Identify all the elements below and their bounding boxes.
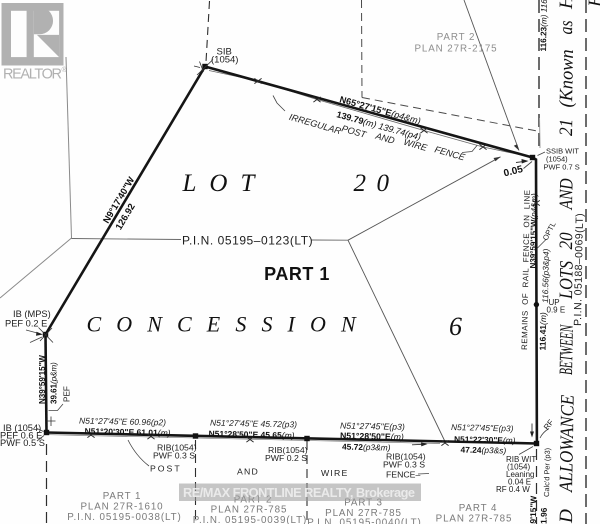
svg-text:PLAN 27R-1610: PLAN 27R-1610 [80,502,163,513]
svg-text:FENCE–: FENCE– [386,470,420,480]
svg-text:P.I.N. 05195-0038(LT): P.I.N. 05195-0038(LT) [67,512,181,523]
svg-text:1.96: 1.96 [539,507,549,524]
svg-text:P.I.N. 05195-0039(LT): P.I.N. 05195-0039(LT) [193,515,307,524]
svg-text:D: D [556,509,577,524]
svg-text:PLAN 27R-785: PLAN 27R-785 [211,505,288,516]
svg-text:PEF 0.2 E: PEF 0.2 E [5,319,47,329]
svg-text:PWF 0.3 S: PWF 0.3 S [153,451,195,461]
svg-text:Calc'd Per (p3): Calc'd Per (p3) [542,448,552,497]
svg-text:PLAN 27R-785: PLAN 27R-785 [436,514,513,524]
svg-text:45.72(p3&m): 45.72(p3&m) [342,442,391,453]
svg-text:PART 4: PART 4 [459,503,498,514]
svg-text:P.I.N. 05195-0040(LT): P.I.N. 05195-0040(LT) [307,518,421,524]
svg-text:116.56(p3&p4): 116.56(p3&p4) [540,248,551,303]
svg-text:21: 21 [556,119,577,136]
svg-text:N51°27'45"E(p3): N51°27'45"E(p3) [451,422,514,433]
svg-text:N39°59'15"W: N39°59'15"W [528,496,539,524]
svg-text:H: H [556,0,577,10]
svg-text:ALLOWANCE: ALLOWANCE [556,394,579,493]
svg-text:N51°27'45"E 45.72(p3): N51°27'45"E 45.72(p3) [210,418,297,430]
svg-text:PLAN 27R-2175: PLAN 27R-2175 [414,44,497,55]
svg-text:BETWEEN: BETWEEN [556,324,578,375]
svg-text:AND: AND [237,467,259,477]
svg-text:PWF 0.2 S: PWF 0.2 S [265,453,307,463]
svg-text:PART 2: PART 2 [437,32,476,43]
svg-text:AND: AND [556,178,578,211]
svg-text:LOT: LOT [182,170,268,197]
svg-text:P.I.N. 05195–0123(LT): P.I.N. 05195–0123(LT) [182,234,313,248]
svg-text:IB (MPS): IB (MPS) [13,309,51,319]
svg-text:47.24(p3&s): 47.24(p3&s) [460,445,506,456]
svg-text:(1054): (1054) [211,55,238,66]
svg-text:39.61(p&m): 39.61(p&m) [50,362,59,404]
svg-text:WIRE: WIRE [321,468,348,478]
svg-text:N51°28'50"E(m): N51°28'50"E(m) [340,431,404,442]
svg-text:PART 1: PART 1 [264,264,330,284]
svg-text:RE/MAX FRONTLINE REALTY, Broke: RE/MAX FRONTLINE REALTY, Brokerage [183,485,415,500]
svg-text:REALTOR: REALTOR [3,67,62,83]
svg-text:(Known: (Known [556,49,578,107]
svg-text:CONCESSION: CONCESSION [87,312,371,337]
svg-text:PEF: PEF [63,386,72,402]
svg-text:0.9 E: 0.9 E [547,306,566,315]
svg-text:PWF 0.7 S: PWF 0.7 S [544,163,580,172]
svg-text:116.23(m) 116.: 116.23(m) 116. [539,0,549,52]
svg-text:PART 1: PART 1 [103,491,142,502]
svg-text:P.I.N. 05188–0069(LT): P.I.N. 05188–0069(LT) [572,213,586,326]
svg-text:N39°59'15"W(p4&m): N39°59'15"W(p4&m) [529,193,539,269]
svg-text:6: 6 [449,312,462,341]
svg-text:H: H [585,0,600,8]
svg-text:N39°59'15"W: N39°59'15"W [38,355,47,404]
svg-text:POST: POST [150,464,182,474]
svg-text:20: 20 [354,170,400,197]
svg-text:PWF 0.5 S: PWF 0.5 S [0,438,45,448]
svg-text:N51°20'30"E 61.01(m): N51°20'30"E 61.01(m) [84,426,170,438]
svg-text:as: as [556,20,577,34]
svg-text:N51°28'50"E 45.65(m): N51°28'50"E 45.65(m) [208,429,294,441]
svg-text:PWF 0.3 S: PWF 0.3 S [383,460,425,470]
svg-text:RF 0.4 W: RF 0.4 W [496,485,530,494]
svg-text:116.41(m): 116.41(m) [538,312,549,351]
